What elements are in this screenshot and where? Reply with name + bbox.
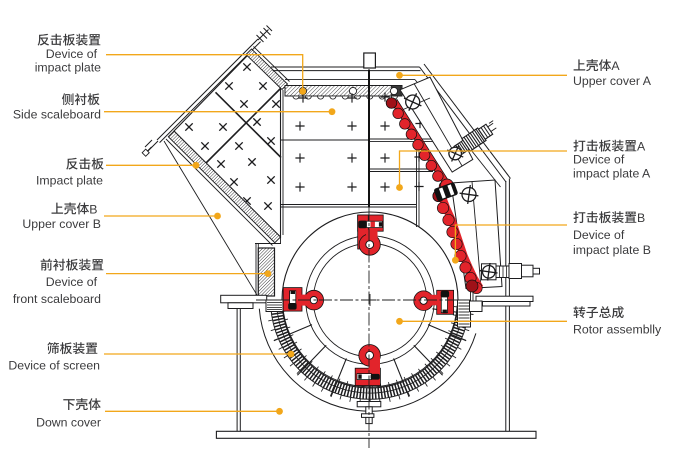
svg-text:Side scaleboard: Side scaleboard — [13, 108, 101, 122]
svg-text:Device of: Device of — [46, 47, 98, 61]
svg-text:A: A — [611, 59, 620, 73]
svg-text:Device of: Device of — [573, 228, 625, 242]
svg-text:Device of: Device of — [573, 153, 625, 167]
svg-text:Down cover: Down cover — [36, 416, 101, 430]
svg-text:Upper cover B: Upper cover B — [22, 217, 101, 231]
svg-text:Device of: Device of — [46, 275, 98, 289]
svg-text:Rotor assemblly: Rotor assemblly — [573, 323, 662, 337]
svg-text:A: A — [637, 140, 646, 154]
svg-text:Impact plate: Impact plate — [36, 174, 103, 188]
svg-text:B: B — [89, 202, 97, 216]
svg-text:Device of screen: Device of screen — [8, 359, 100, 373]
svg-text:front scaleboard: front scaleboard — [13, 292, 101, 306]
svg-text:impact plate A: impact plate A — [573, 167, 651, 181]
svg-text:impact plate: impact plate — [35, 61, 101, 75]
svg-text:impact plate B: impact plate B — [573, 243, 651, 257]
svg-text:Upper cover A: Upper cover A — [573, 74, 652, 88]
svg-text:B: B — [637, 211, 645, 225]
